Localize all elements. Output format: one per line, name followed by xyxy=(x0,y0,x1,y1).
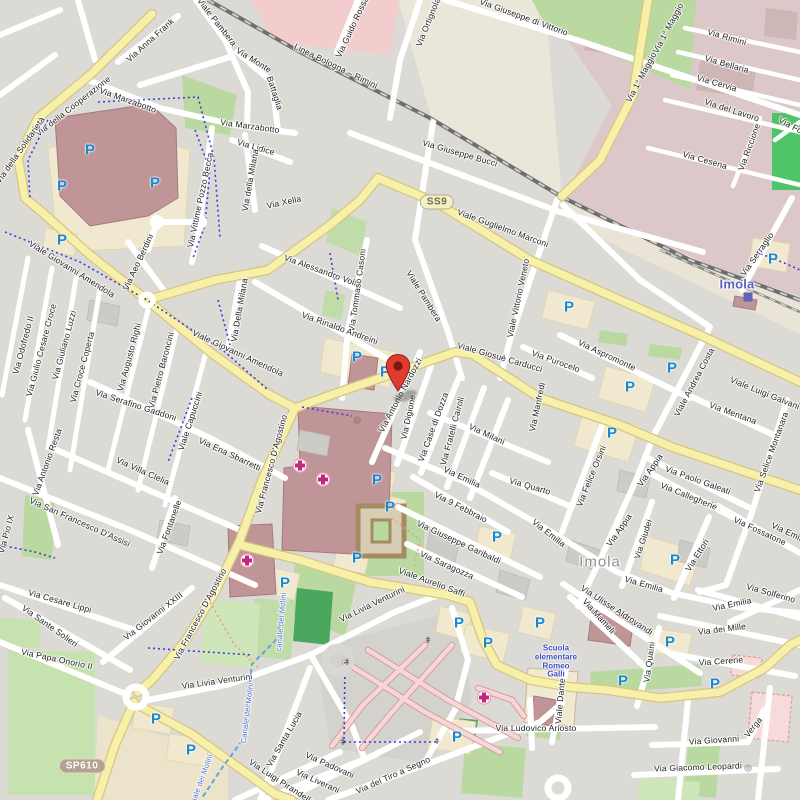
street-name-label: Via Ena Sbarretti xyxy=(197,435,262,473)
parking-icon: P xyxy=(186,742,196,759)
street-name-label: Via del Tiro a Segno xyxy=(354,754,432,796)
street-name-label: Viale Giosuè Carducci xyxy=(456,340,543,374)
school-label-line: Galli xyxy=(535,671,577,680)
city-label-imola: Imola xyxy=(579,554,621,571)
street-name-label: Via Cesena xyxy=(682,149,729,171)
street-name-label: Via Ludovico Ariosto xyxy=(496,723,577,733)
street-name-label: Via Giuseppe Garibaldi xyxy=(415,518,502,566)
street-name-label: Via Bellaria xyxy=(704,53,750,75)
street-name-label: Via Quarto xyxy=(508,475,552,496)
parking-icon: P xyxy=(625,379,635,396)
railway-station-icon xyxy=(744,293,753,302)
parking-icon: P xyxy=(483,635,493,652)
hospital-icon xyxy=(240,553,255,573)
street-name-label: Via del Lavoro xyxy=(703,96,760,123)
parking-icon: P xyxy=(607,425,617,442)
street-name-label: Via Quaini xyxy=(641,641,657,683)
street-name-label: Via Ulisse Aldrovandi xyxy=(579,583,655,637)
street-name-label: Via Antonio Resta xyxy=(30,427,64,497)
street-name-label: Via della Solidarietà xyxy=(0,115,47,186)
street-name-label: Via Felice Orsini xyxy=(574,444,608,508)
street-name-label: Via Villa Clelia xyxy=(115,455,171,487)
street-name-label: Battaglia xyxy=(265,75,285,111)
street-name-label: Viale Guglielmo Marconi xyxy=(456,207,550,249)
parking-icon: P xyxy=(670,552,680,569)
street-name-label: Via Paolo Galeati xyxy=(664,464,732,497)
street-name-label: Via For xyxy=(777,115,800,137)
street-name-label: Via Santa Lucia xyxy=(264,709,304,768)
street-name-label: Via San Francesco D'Assisi xyxy=(28,495,132,549)
street-name-label: Via Giovanni XXIII xyxy=(121,590,184,642)
street-name-label: Via Padovani xyxy=(304,750,356,780)
parking-icon: P xyxy=(280,575,290,592)
street-name-label: Via Francesco D'Agostino xyxy=(253,413,289,514)
route-shield-sp610: SP610 xyxy=(59,759,106,774)
street-name-label: Via Emilia xyxy=(770,520,800,546)
street-name-label: Via Emilia xyxy=(442,464,482,490)
street-name-label: Via della Cooperazione xyxy=(34,74,113,139)
street-name-label: Viale Aurelio Saffi xyxy=(397,565,466,598)
street-name-label: Via Fontanelle xyxy=(155,499,184,556)
street-name-label: Via Sante Solieri xyxy=(20,603,80,649)
street-name-label: Via Cesare Lippi xyxy=(27,587,93,615)
parking-icon: P xyxy=(667,360,677,377)
street-name-label: Viale Dante xyxy=(553,678,567,725)
street-name-label: Via Selice Montanara xyxy=(752,411,790,494)
street-name-label: Via Aspromonte xyxy=(576,337,637,373)
street-name-label: Via Augusto Righi xyxy=(115,322,143,393)
parking-icon: P xyxy=(352,550,362,567)
street-name-label: Viale Capuccini xyxy=(176,390,204,452)
map-canvas[interactable]: Via della CooperazioneVia della Solidari… xyxy=(0,0,800,800)
parking-icon: P xyxy=(57,232,67,249)
street-name-label: Via Liverani xyxy=(295,767,342,795)
street-name-label: Via Marzabotto xyxy=(98,85,158,115)
canal-name-label: Canale dei Molini xyxy=(239,682,255,744)
hospital-icon xyxy=(293,458,308,478)
street-name-label: Via Vittime Pozzo Becca xyxy=(185,152,215,249)
street-name-label: Via dei Mille xyxy=(697,621,746,637)
parking-icon: P xyxy=(710,676,720,693)
canal-name-label: canale dei Molini xyxy=(274,592,288,652)
street-name-label: Via Callegherie xyxy=(659,480,719,512)
street-name-label: Via Manfredi xyxy=(527,382,547,433)
map-pin-marker[interactable] xyxy=(385,353,412,398)
street-name-label: Via Giuliano Luzzi xyxy=(50,309,78,381)
street-name-label: Via Emilia xyxy=(530,517,567,549)
street-name-label: Via Odofredo II xyxy=(10,315,35,376)
gate-icon: ǂ xyxy=(434,736,439,746)
street-name-label: Via Emilia xyxy=(712,595,753,613)
street-name-label: Via Francesco D'Agostino xyxy=(172,567,229,662)
route-shield-ss9: SS9 xyxy=(420,195,454,210)
parking-icon: P xyxy=(151,711,161,728)
street-name-label: Via Croce Coperta xyxy=(68,330,97,403)
street-name-label: Via Livia Venturini xyxy=(338,584,406,624)
street-name-label: Via Ettori xyxy=(683,537,711,573)
street-name-label: Via Marzabotto xyxy=(220,117,281,135)
street-name-label: Via Serafino Gaddoni xyxy=(94,387,178,423)
parking-icon: P xyxy=(85,142,95,159)
street-name-label: Via Alessandro Volta xyxy=(283,252,363,289)
street-name-label: Via Pietro Baroncini xyxy=(146,331,176,409)
street-name-label: Via Riccione xyxy=(736,122,762,172)
parking-icon: P xyxy=(492,529,502,546)
parking-icon: P xyxy=(385,499,395,516)
street-name-label: Via Livia Venturini xyxy=(181,671,253,691)
station-label-imola: Imola xyxy=(720,277,755,292)
street-name-label: Via Appia xyxy=(635,452,665,489)
street-name-label: Via Milani xyxy=(467,421,506,446)
street-name-label: Via 1° Maggio xyxy=(651,1,686,55)
school-label: ScuolaelementareRomeoGalli xyxy=(535,644,577,679)
street-name-label: Via Giovanni xyxy=(688,733,739,746)
parking-icon: P xyxy=(57,178,67,195)
street-name-label: Via Serraglio xyxy=(738,230,776,278)
hospital-icon xyxy=(316,472,331,492)
monument-icon: ◎ xyxy=(353,415,361,426)
street-name-label: Via Rinaldo Andreini xyxy=(301,310,380,347)
parking-icon: P xyxy=(372,472,382,489)
street-name-label: Via Fossatone xyxy=(732,514,788,547)
parking-icon: P xyxy=(454,615,464,632)
street-name-label: Via Mentana xyxy=(708,400,758,426)
street-name-label: Via della Milana xyxy=(240,148,261,212)
street-name-label: Via Lidice xyxy=(236,137,276,157)
gate-icon: ǂ xyxy=(340,737,345,747)
street-name-label: Viale Giovanni Amendola xyxy=(191,327,285,378)
street-name-label: Via Rimini xyxy=(706,27,747,48)
street-name-label: Via Emilia xyxy=(624,574,665,595)
parking-icon: P xyxy=(618,673,628,690)
street-name-label: Via Mameli xyxy=(581,596,618,635)
street-name-label: Via Giulio Cesare Croce xyxy=(24,303,58,398)
street-name-label: Via 1° Maggio xyxy=(624,50,659,104)
street-name-label: Viale Giovanni Amendola xyxy=(27,238,117,299)
street-name-label: Viale Vittorio Veneto xyxy=(505,258,532,339)
street-name-label: Via Saragozza xyxy=(419,549,476,582)
parking-icon: P xyxy=(768,251,778,268)
monument-icon: ◎ xyxy=(744,763,752,774)
street-name-label: Via Xella xyxy=(266,193,303,210)
street-name-label: Verga xyxy=(742,715,764,739)
street-name-label: Via Cererie xyxy=(698,654,743,667)
street-name-label: Via Aeo Berdini xyxy=(121,232,156,291)
street-name-label: Via Case di Dozza xyxy=(416,391,450,463)
street-name-label: Via Purocelo xyxy=(531,348,582,375)
street-name-label: Via Papa Onorio II xyxy=(20,647,93,672)
street-name-label: Via Cervia xyxy=(696,73,738,94)
street-name-label: Via Luigi Pirandello xyxy=(247,757,317,800)
gate-icon: ǂ xyxy=(425,635,430,645)
map-overlay: Via della CooperazioneVia della Solidari… xyxy=(0,0,800,800)
street-name-label: Viale Pambera xyxy=(195,0,239,48)
street-name-label: Via Giuseppe Bucci xyxy=(421,137,498,168)
street-name-label: Via Appia xyxy=(604,512,634,549)
street-name-label: Viale Luigi Galvani xyxy=(729,374,800,411)
parking-icon: P xyxy=(665,634,675,651)
hospital-icon xyxy=(477,690,492,710)
street-name-label: Via Giudei xyxy=(632,518,654,560)
parking-icon: P xyxy=(352,349,362,366)
street-name-label: Via Tommaso Casoni xyxy=(346,248,368,332)
street-name-label: Via Giuseppe di Vittorio xyxy=(478,0,569,38)
parking-icon: P xyxy=(535,615,545,632)
street-name-label: Via Monte xyxy=(234,45,273,75)
street-name-label: Via Giacomo Leopardi xyxy=(654,760,742,773)
street-name-label: Via Ortignola xyxy=(414,0,443,48)
parking-icon: P xyxy=(564,299,574,316)
street-name-label: Viale Pambera xyxy=(404,269,443,324)
railway-name-label: Linea Bologna – Rimini xyxy=(293,41,380,90)
canal-name-label: Canale dei Molini xyxy=(185,753,214,800)
street-name-label: Via 9 Febbraio xyxy=(433,489,489,524)
parking-icon: P xyxy=(452,729,462,746)
parking-icon: P xyxy=(150,175,160,192)
street-name-label: Via Della Milana xyxy=(228,277,249,342)
street-name-label: Via Fratelli Cairoli xyxy=(438,396,466,467)
street-name-label: Via Solferino xyxy=(745,581,796,605)
street-name-label: Via Pio IX xyxy=(0,514,16,554)
street-name-label: Viale Andrea Costa xyxy=(672,346,717,418)
gate-icon: ǂ xyxy=(344,657,349,667)
street-name-label: Via Anna Frank xyxy=(124,16,176,64)
street-name-label: Via Guido Rossa xyxy=(333,0,370,59)
